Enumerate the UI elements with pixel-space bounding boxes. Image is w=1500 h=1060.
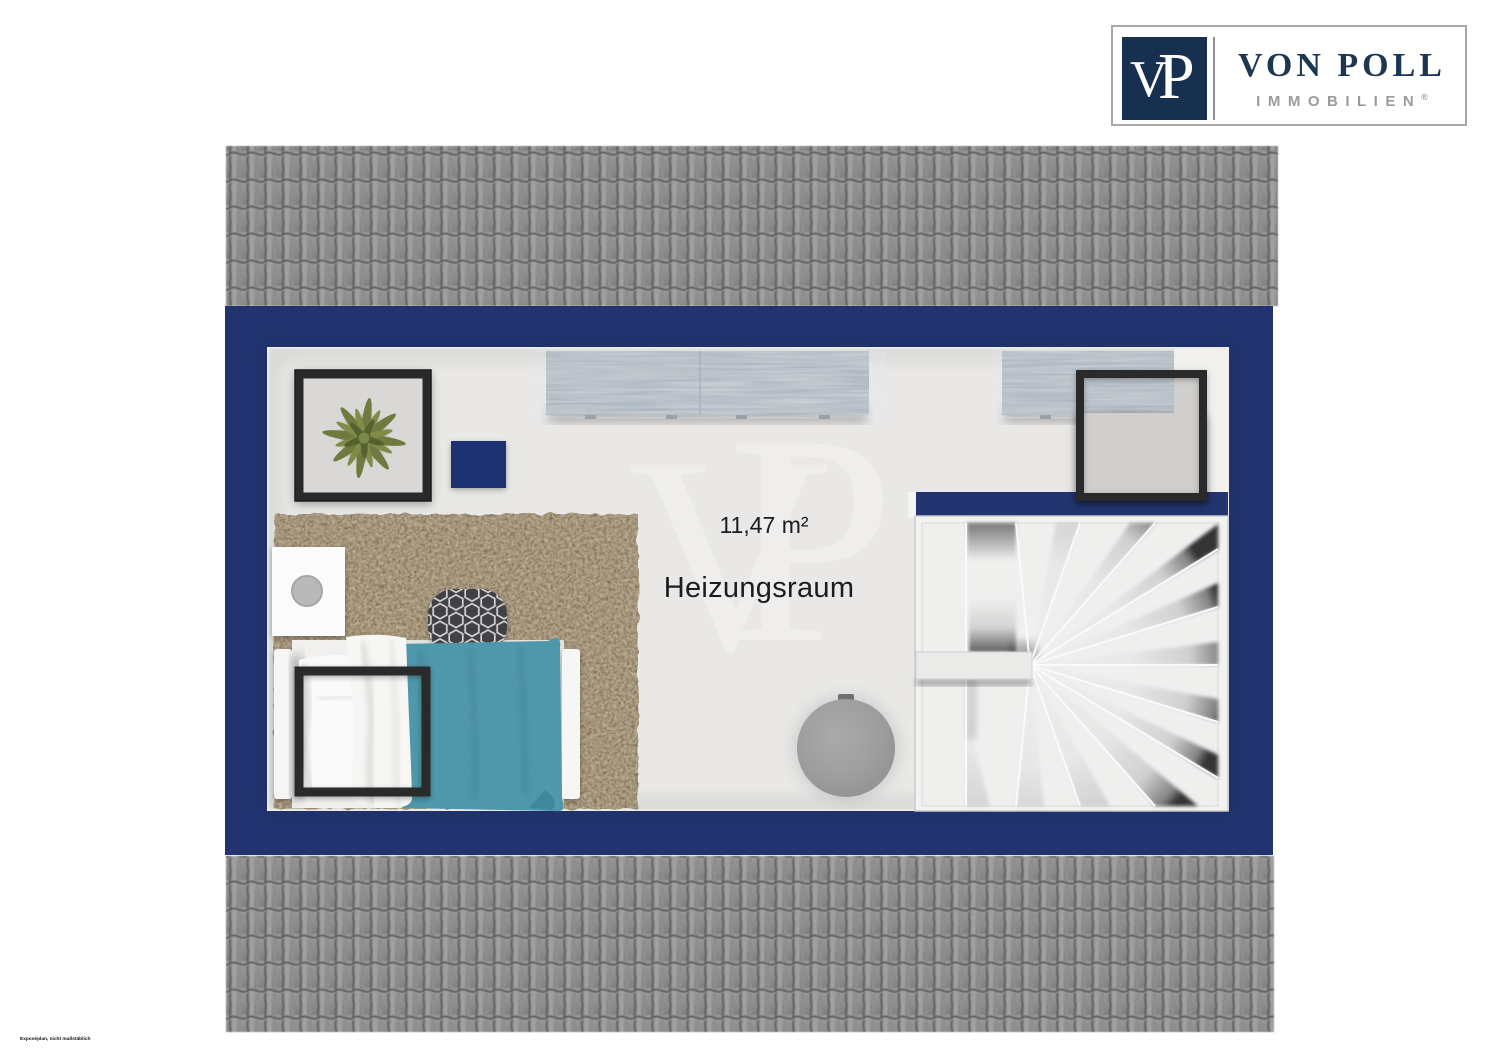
svg-text:11,47 m²: 11,47 m² xyxy=(719,512,808,538)
svg-text:Heizungsraum: Heizungsraum xyxy=(664,572,855,604)
svg-text:Exposéplan, nicht maßstäblich: Exposéplan, nicht maßstäblich xyxy=(20,1036,90,1042)
